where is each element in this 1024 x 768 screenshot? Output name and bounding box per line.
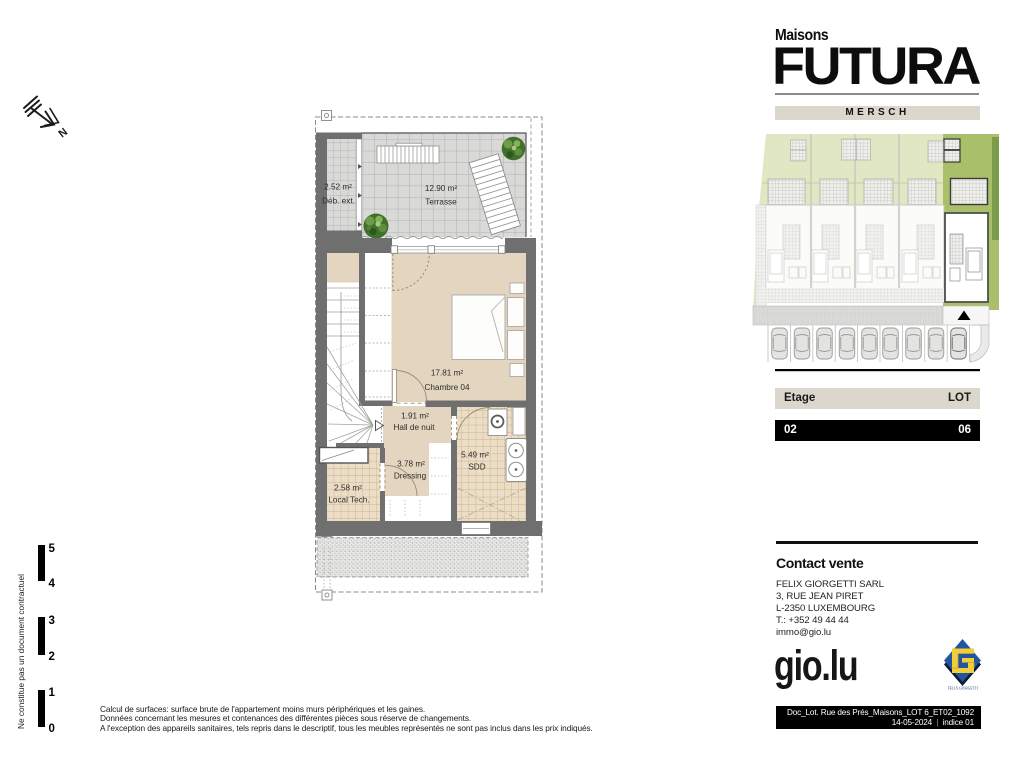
svg-text:12.90 m²: 12.90 m²	[425, 184, 458, 193]
svg-text:1: 1	[49, 687, 56, 699]
svg-text:Local Tech.: Local Tech.	[328, 496, 369, 505]
svg-text:2.52 m²: 2.52 m²	[324, 183, 352, 192]
svg-text:SDD: SDD	[468, 463, 485, 472]
svg-text:2.58 m²: 2.58 m²	[334, 484, 362, 493]
svg-text:3.78 m²: 3.78 m²	[397, 460, 425, 469]
svg-text:Chambre 04: Chambre 04	[424, 383, 470, 392]
svg-text:N: N	[56, 126, 70, 140]
svg-text:4: 4	[49, 578, 56, 590]
svg-text:Terrasse: Terrasse	[425, 198, 457, 207]
svg-text:3: 3	[49, 615, 55, 627]
svg-text:17.81 m²: 17.81 m²	[431, 369, 464, 378]
svg-text:5.49 m²: 5.49 m²	[461, 451, 489, 460]
svg-text:FELIX GIORGETTI: FELIX GIORGETTI	[948, 687, 979, 691]
svg-text:Ne constitue pas un document c: Ne constitue pas un document contractuel	[16, 574, 26, 729]
svg-text:0: 0	[49, 723, 55, 735]
svg-text:Déb. ext.: Déb. ext.	[322, 197, 355, 206]
svg-text:Dressing: Dressing	[394, 472, 427, 481]
svg-text:5: 5	[49, 543, 56, 555]
svg-text:1.91 m²: 1.91 m²	[401, 412, 429, 421]
svg-text:Hall de nuit: Hall de nuit	[394, 423, 436, 432]
svg-text:2: 2	[49, 651, 55, 663]
